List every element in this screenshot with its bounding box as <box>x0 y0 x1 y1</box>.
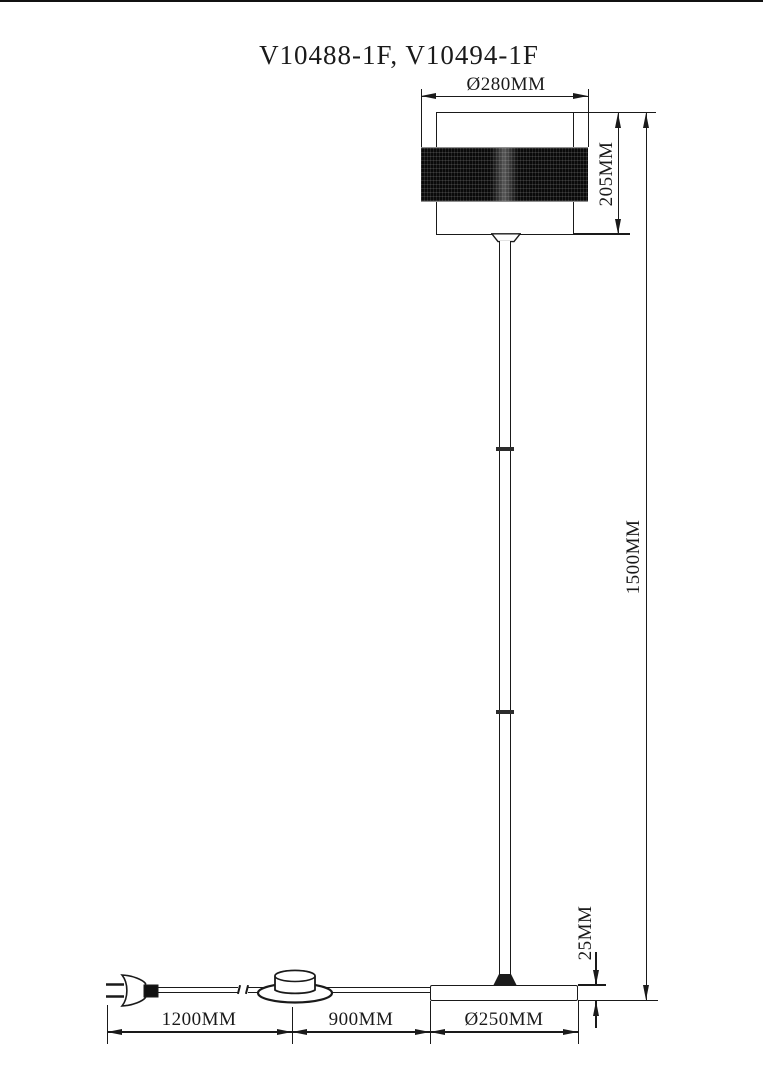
dimension-line <box>421 96 588 97</box>
extension-line <box>107 1005 108 1044</box>
drawing-title: V10488-1F, V10494-1F <box>199 41 599 70</box>
dim-label-cord-plug-to-switch: 1200MM <box>124 1010 274 1030</box>
dim-label-base-diameter: Ø250MM <box>429 1010 579 1030</box>
dimension-line <box>618 113 619 234</box>
arrowhead <box>593 1001 599 1016</box>
lamp-base <box>430 985 578 1001</box>
arrowhead <box>107 1029 122 1035</box>
dim-label-base-thickness: 25MM <box>576 883 596 983</box>
dim-label-total-height: 1500MM <box>624 507 644 607</box>
power-cord <box>157 987 238 993</box>
pole-joint-lower <box>496 710 514 714</box>
power-plug <box>100 972 162 1012</box>
dim-label-shade-diameter: Ø280MM <box>426 75 586 95</box>
lamp-pole <box>499 241 511 977</box>
dimension-line <box>646 113 647 1000</box>
arrowhead <box>643 113 649 128</box>
dim-label-shade-height: 205MM <box>597 124 617 224</box>
frame-top-edge <box>0 0 763 2</box>
dim-label-cord-switch-to-base: 900MM <box>286 1010 436 1030</box>
technical-drawing-floor-lamp: V10488-1F, V10494-1F Ø280MM 205MM <box>0 0 763 1080</box>
shade-mesh-band <box>421 147 588 202</box>
extension-line <box>578 1000 658 1001</box>
extension-line <box>574 233 630 234</box>
foot-switch <box>252 964 340 1012</box>
arrowhead <box>643 985 649 1000</box>
pole-joint-upper <box>496 447 514 451</box>
dimension-line <box>107 1031 578 1032</box>
